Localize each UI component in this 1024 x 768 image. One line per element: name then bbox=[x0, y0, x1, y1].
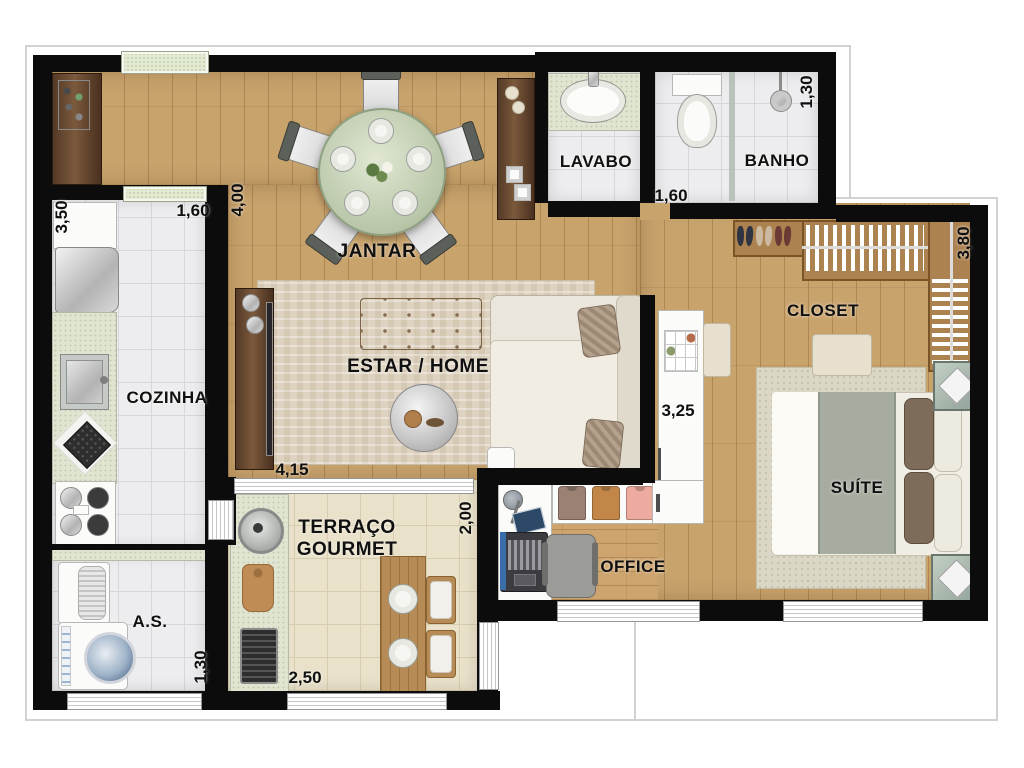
bed-sheet-fold bbox=[772, 392, 820, 554]
window-icon bbox=[557, 601, 700, 622]
room-label-estar: ESTAR / HOME bbox=[347, 356, 489, 378]
room-label-jantar: JANTAR bbox=[338, 241, 417, 263]
sideboard-box-icon bbox=[506, 166, 523, 183]
wall-bath-right bbox=[818, 52, 836, 208]
room-label-cozinha: COZINHA bbox=[127, 388, 208, 408]
bowl-icon bbox=[404, 410, 422, 428]
wall-top-bath bbox=[535, 52, 836, 72]
toilet-tank-icon bbox=[672, 74, 722, 96]
sideboard-vase-icon bbox=[505, 86, 519, 100]
place-setting-icon bbox=[344, 190, 370, 216]
wall-lavabo-bottom bbox=[548, 201, 640, 217]
entry-tray-icon bbox=[58, 80, 90, 130]
laptop-keyboard bbox=[508, 540, 542, 570]
speaker-icon bbox=[242, 294, 260, 312]
window-icon bbox=[121, 51, 209, 74]
bed-pillow-icon bbox=[904, 472, 934, 544]
place-setting-icon bbox=[330, 146, 356, 172]
stove-burner-icon bbox=[87, 514, 109, 536]
stove-center-icon bbox=[73, 505, 89, 515]
service-door-icon bbox=[67, 693, 202, 710]
ottoman-icon bbox=[360, 298, 482, 350]
tv-icon bbox=[266, 302, 273, 456]
closet-rod-icon bbox=[802, 246, 928, 249]
bed-blanket-icon bbox=[818, 392, 896, 554]
dimension-estar-width: 4,15 bbox=[275, 460, 308, 480]
shoe-icon bbox=[775, 226, 782, 246]
room-label-banho: BANHO bbox=[745, 151, 810, 171]
room-label-suite: SUÍTE bbox=[831, 478, 884, 498]
place-setting-icon bbox=[392, 190, 418, 216]
dimension-terraco-height: 2,00 bbox=[456, 501, 476, 534]
shower-glass-divider bbox=[729, 72, 735, 201]
dimension-as-height: 1,30 bbox=[191, 650, 211, 683]
side-table-icon bbox=[390, 384, 458, 452]
faucet-icon bbox=[100, 376, 108, 384]
shoe-icon bbox=[737, 226, 744, 246]
bowl-icon bbox=[426, 418, 444, 427]
terrace-sink-drain bbox=[253, 523, 263, 533]
dimension-cozinha-width: 1,60 bbox=[176, 201, 209, 221]
terrace-side-window-icon bbox=[479, 622, 499, 690]
room-label-terraco-line1: TERRAÇO bbox=[298, 517, 395, 539]
shoe-icon bbox=[756, 226, 763, 246]
room-label-lavabo: LAVABO bbox=[560, 152, 632, 172]
dimension-banho-height: 1,30 bbox=[797, 75, 817, 108]
place-setting-icon bbox=[368, 118, 394, 144]
chair-armrest-icon bbox=[592, 542, 598, 586]
wall-top bbox=[205, 55, 537, 72]
shower-head-icon bbox=[770, 90, 792, 112]
stool-cushion-icon bbox=[430, 581, 452, 619]
wardrobe-handle-icon bbox=[656, 494, 660, 512]
sideboard-box-icon bbox=[514, 184, 531, 201]
cutting-board-icon bbox=[242, 564, 274, 612]
toilet-bowl-icon bbox=[677, 94, 717, 148]
mosaic-decor-icon bbox=[664, 330, 698, 372]
stove-burner-icon bbox=[87, 487, 109, 509]
washer-door-icon bbox=[84, 632, 136, 684]
room-label-office: OFFICE bbox=[600, 557, 665, 577]
bed-pillow-icon bbox=[934, 474, 962, 552]
dimension-cozinha-height: 3,50 bbox=[52, 200, 72, 233]
bed-bench-icon bbox=[812, 334, 872, 376]
floor-plan: JANTAR ESTAR / HOME COZINHA A.S. LAVABO … bbox=[0, 0, 1024, 768]
sofa-pillow-icon bbox=[577, 304, 622, 359]
wall-left bbox=[33, 55, 52, 710]
room-label-closet: CLOSET bbox=[787, 301, 859, 321]
chair-armrest-icon bbox=[542, 542, 548, 586]
wall-kitchen-right bbox=[205, 185, 228, 691]
bedside-bench-icon bbox=[703, 323, 731, 377]
sideboard-vase-icon bbox=[512, 101, 525, 114]
folded-shirt-icon bbox=[558, 486, 586, 520]
place-setting-icon bbox=[388, 638, 418, 668]
wall-office-top bbox=[477, 468, 643, 485]
wall-right bbox=[970, 205, 988, 621]
kitchen-pass-through-window-icon bbox=[123, 186, 207, 202]
washboard-icon bbox=[78, 566, 106, 620]
room-label-as: A.S. bbox=[132, 612, 167, 632]
room-label-terraco-line2: GOURMET bbox=[297, 539, 398, 561]
folded-shirt-icon bbox=[592, 486, 620, 520]
washer-panel-icon bbox=[61, 626, 71, 686]
terrace-railing-icon bbox=[287, 693, 447, 710]
dimension-terraco-width: 2,50 bbox=[288, 668, 321, 688]
laptop-screen-edge bbox=[500, 532, 506, 590]
wall-top bbox=[33, 55, 125, 72]
table-centerpiece-icon bbox=[362, 157, 398, 183]
as-ledge-icon bbox=[52, 549, 207, 561]
dimension-closet-height: 3,80 bbox=[954, 226, 974, 259]
window-icon bbox=[783, 601, 923, 622]
bbq-grill-icon bbox=[240, 628, 278, 684]
laptop-touchpad bbox=[514, 574, 536, 586]
bar-table-icon bbox=[380, 556, 426, 692]
wall-lavabo-right bbox=[640, 72, 655, 203]
sofa-pillow-icon bbox=[582, 418, 625, 470]
stove-burner-icon bbox=[60, 514, 82, 536]
wall-lavabo-left bbox=[535, 72, 548, 203]
dimension-jantar-height: 4,00 bbox=[228, 183, 248, 216]
office-chair-icon bbox=[546, 534, 596, 598]
stool-cushion-icon bbox=[430, 635, 452, 673]
dimension-banho-width: 1,60 bbox=[654, 186, 687, 206]
bed-pillow-icon bbox=[904, 398, 934, 470]
wall-closet-top bbox=[836, 205, 988, 222]
closet-rod-icon bbox=[950, 222, 953, 366]
kitchen-terrace-door-icon bbox=[208, 500, 234, 540]
fridge-icon bbox=[55, 247, 119, 313]
wall-banho-bottom bbox=[668, 203, 836, 219]
place-setting-icon bbox=[388, 584, 418, 614]
dimension-suite-height: 3,25 bbox=[661, 401, 694, 421]
folded-shirt-icon bbox=[626, 486, 654, 520]
wall-hall-estar bbox=[640, 295, 655, 483]
sliding-door-icon bbox=[234, 478, 474, 494]
wall-kitchen-as-divider bbox=[52, 544, 205, 550]
speaker-icon bbox=[246, 316, 264, 334]
place-setting-icon bbox=[406, 146, 432, 172]
